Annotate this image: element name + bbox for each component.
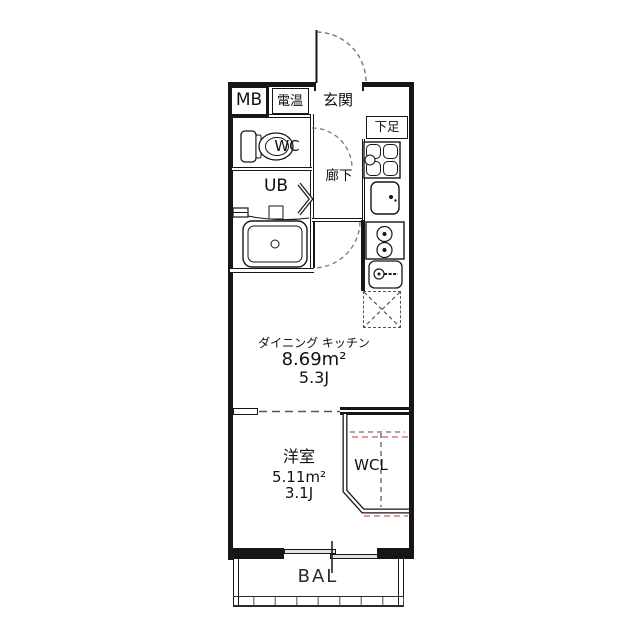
unit-bath-label: UB xyxy=(264,178,288,195)
bedroom-area: 5.11m² xyxy=(272,470,326,485)
stove-icon xyxy=(366,222,404,259)
dk-door-arc xyxy=(313,222,360,268)
entrance-label: 玄関 xyxy=(323,93,353,108)
meter-box-label: MB xyxy=(236,92,262,109)
fixtures-layer xyxy=(0,0,640,640)
balcony-label: BAL xyxy=(298,568,339,586)
dining-kitchen-area: 8.69m² xyxy=(282,351,347,369)
dining-kitchen-tatami: 5.3J xyxy=(299,370,329,386)
wc-label: WC xyxy=(274,139,299,154)
shoe-box-label: 下足 xyxy=(374,121,399,134)
kitchen-sink-icon xyxy=(369,261,402,288)
refrigerator-x-icon xyxy=(364,292,400,327)
bathtub-icon xyxy=(233,206,309,267)
closet-label: WCL xyxy=(354,458,388,473)
water-heater-label: 電温 xyxy=(277,95,303,108)
dk-door xyxy=(313,222,360,268)
washing-machine-pan-icon xyxy=(364,142,400,178)
ub-folding-door-icon xyxy=(299,184,311,214)
entrance-door xyxy=(317,30,367,83)
floor-plan: MB 電温 玄関 下足 WC 廊下 UB ダイニング キッチン 8.69m² 5… xyxy=(0,0,640,640)
dining-kitchen-label: ダイニング キッチン xyxy=(258,337,370,349)
wc-door-arc xyxy=(312,128,352,168)
bath-counter-icon xyxy=(269,206,283,219)
entrance-door-arc xyxy=(317,32,366,81)
corridor-label: 廊下 xyxy=(326,170,353,184)
bedroom-tatami: 3.1J xyxy=(285,486,313,501)
vanity-icon xyxy=(371,182,399,214)
bedroom-label: 洋室 xyxy=(283,449,315,465)
